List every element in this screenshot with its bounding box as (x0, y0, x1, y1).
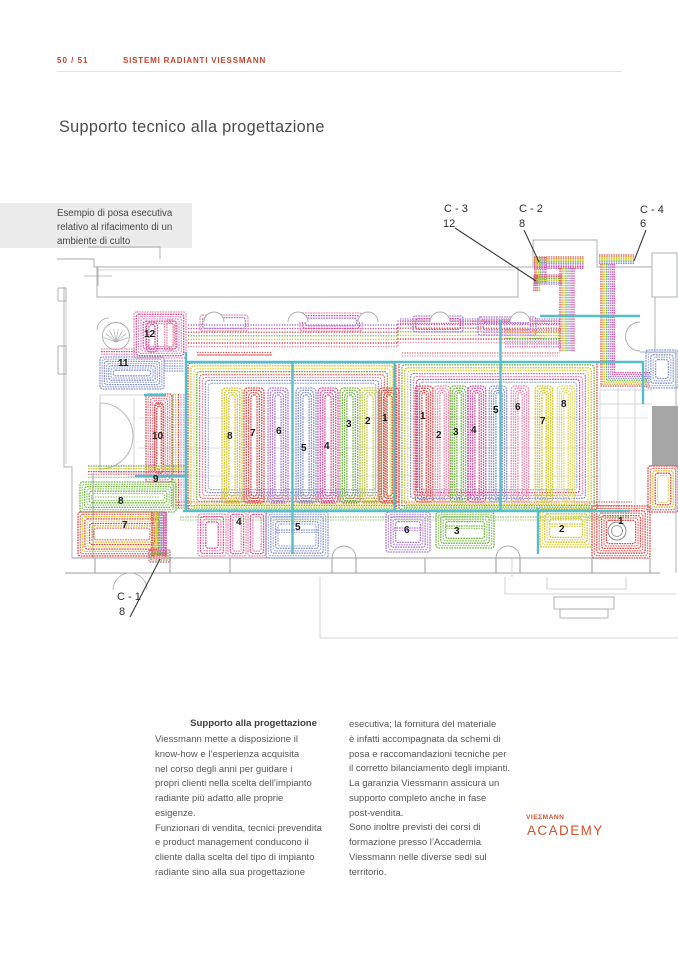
svg-text:8: 8 (561, 399, 567, 410)
svg-text:6: 6 (276, 426, 282, 437)
svg-text:5: 5 (301, 443, 307, 454)
svg-text:1: 1 (382, 413, 388, 424)
svg-text:6: 6 (515, 402, 521, 413)
svg-text:4: 4 (324, 441, 330, 452)
svg-text:C - 2: C - 2 (519, 203, 543, 215)
svg-text:3: 3 (454, 526, 460, 537)
svg-text:4: 4 (471, 425, 477, 436)
svg-text:1: 1 (420, 411, 426, 422)
svg-text:1: 1 (618, 516, 624, 527)
svg-text:8: 8 (227, 431, 233, 442)
svg-text:11: 11 (118, 358, 129, 369)
svg-text:3: 3 (346, 419, 352, 430)
svg-text:8: 8 (118, 496, 124, 507)
svg-text:2: 2 (559, 524, 565, 535)
svg-text:12: 12 (144, 329, 156, 340)
svg-text:8: 8 (119, 606, 125, 618)
svg-text:7: 7 (540, 416, 546, 427)
svg-text:12: 12 (443, 218, 455, 230)
svg-text:2: 2 (436, 430, 442, 441)
svg-text:C - 3: C - 3 (444, 203, 468, 215)
svg-text:8: 8 (519, 218, 525, 230)
svg-text:5: 5 (295, 522, 301, 533)
svg-text:7: 7 (122, 520, 128, 531)
svg-text:3: 3 (453, 427, 459, 438)
svg-text:2: 2 (365, 416, 371, 427)
svg-text:C - 1: C - 1 (117, 591, 141, 603)
svg-text:4: 4 (236, 517, 242, 528)
svg-text:6: 6 (640, 218, 646, 230)
svg-text:10: 10 (152, 431, 164, 442)
svg-text:7: 7 (250, 428, 256, 439)
svg-text:C - 4: C - 4 (640, 204, 664, 216)
svg-text:9: 9 (153, 474, 159, 485)
svg-text:6: 6 (404, 525, 410, 536)
svg-text:5: 5 (493, 405, 499, 416)
